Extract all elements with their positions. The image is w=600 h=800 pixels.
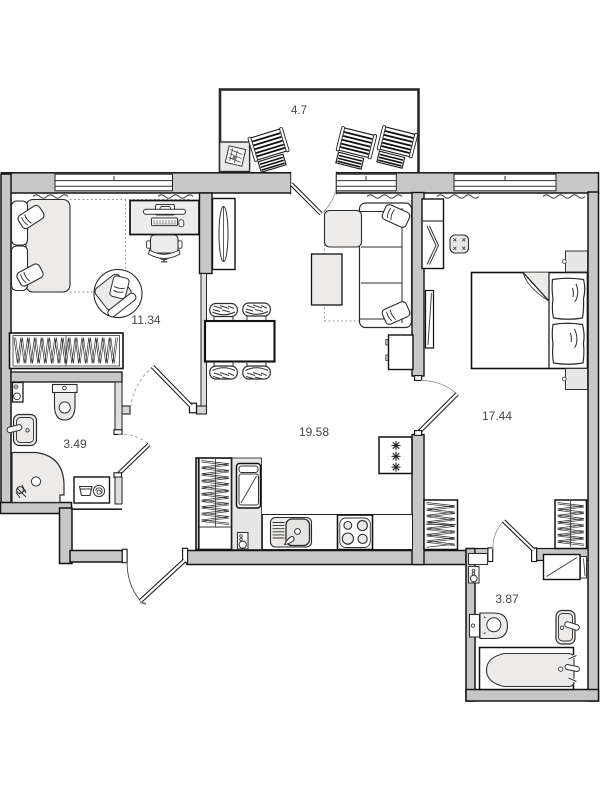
- svg-text:3.87: 3.87: [495, 592, 519, 606]
- svg-text:3.49: 3.49: [63, 437, 87, 451]
- svg-text:19.58: 19.58: [299, 425, 329, 439]
- svg-text:4.7: 4.7: [291, 105, 307, 117]
- svg-text:11.34: 11.34: [131, 313, 160, 327]
- svg-text:17.44: 17.44: [482, 409, 512, 423]
